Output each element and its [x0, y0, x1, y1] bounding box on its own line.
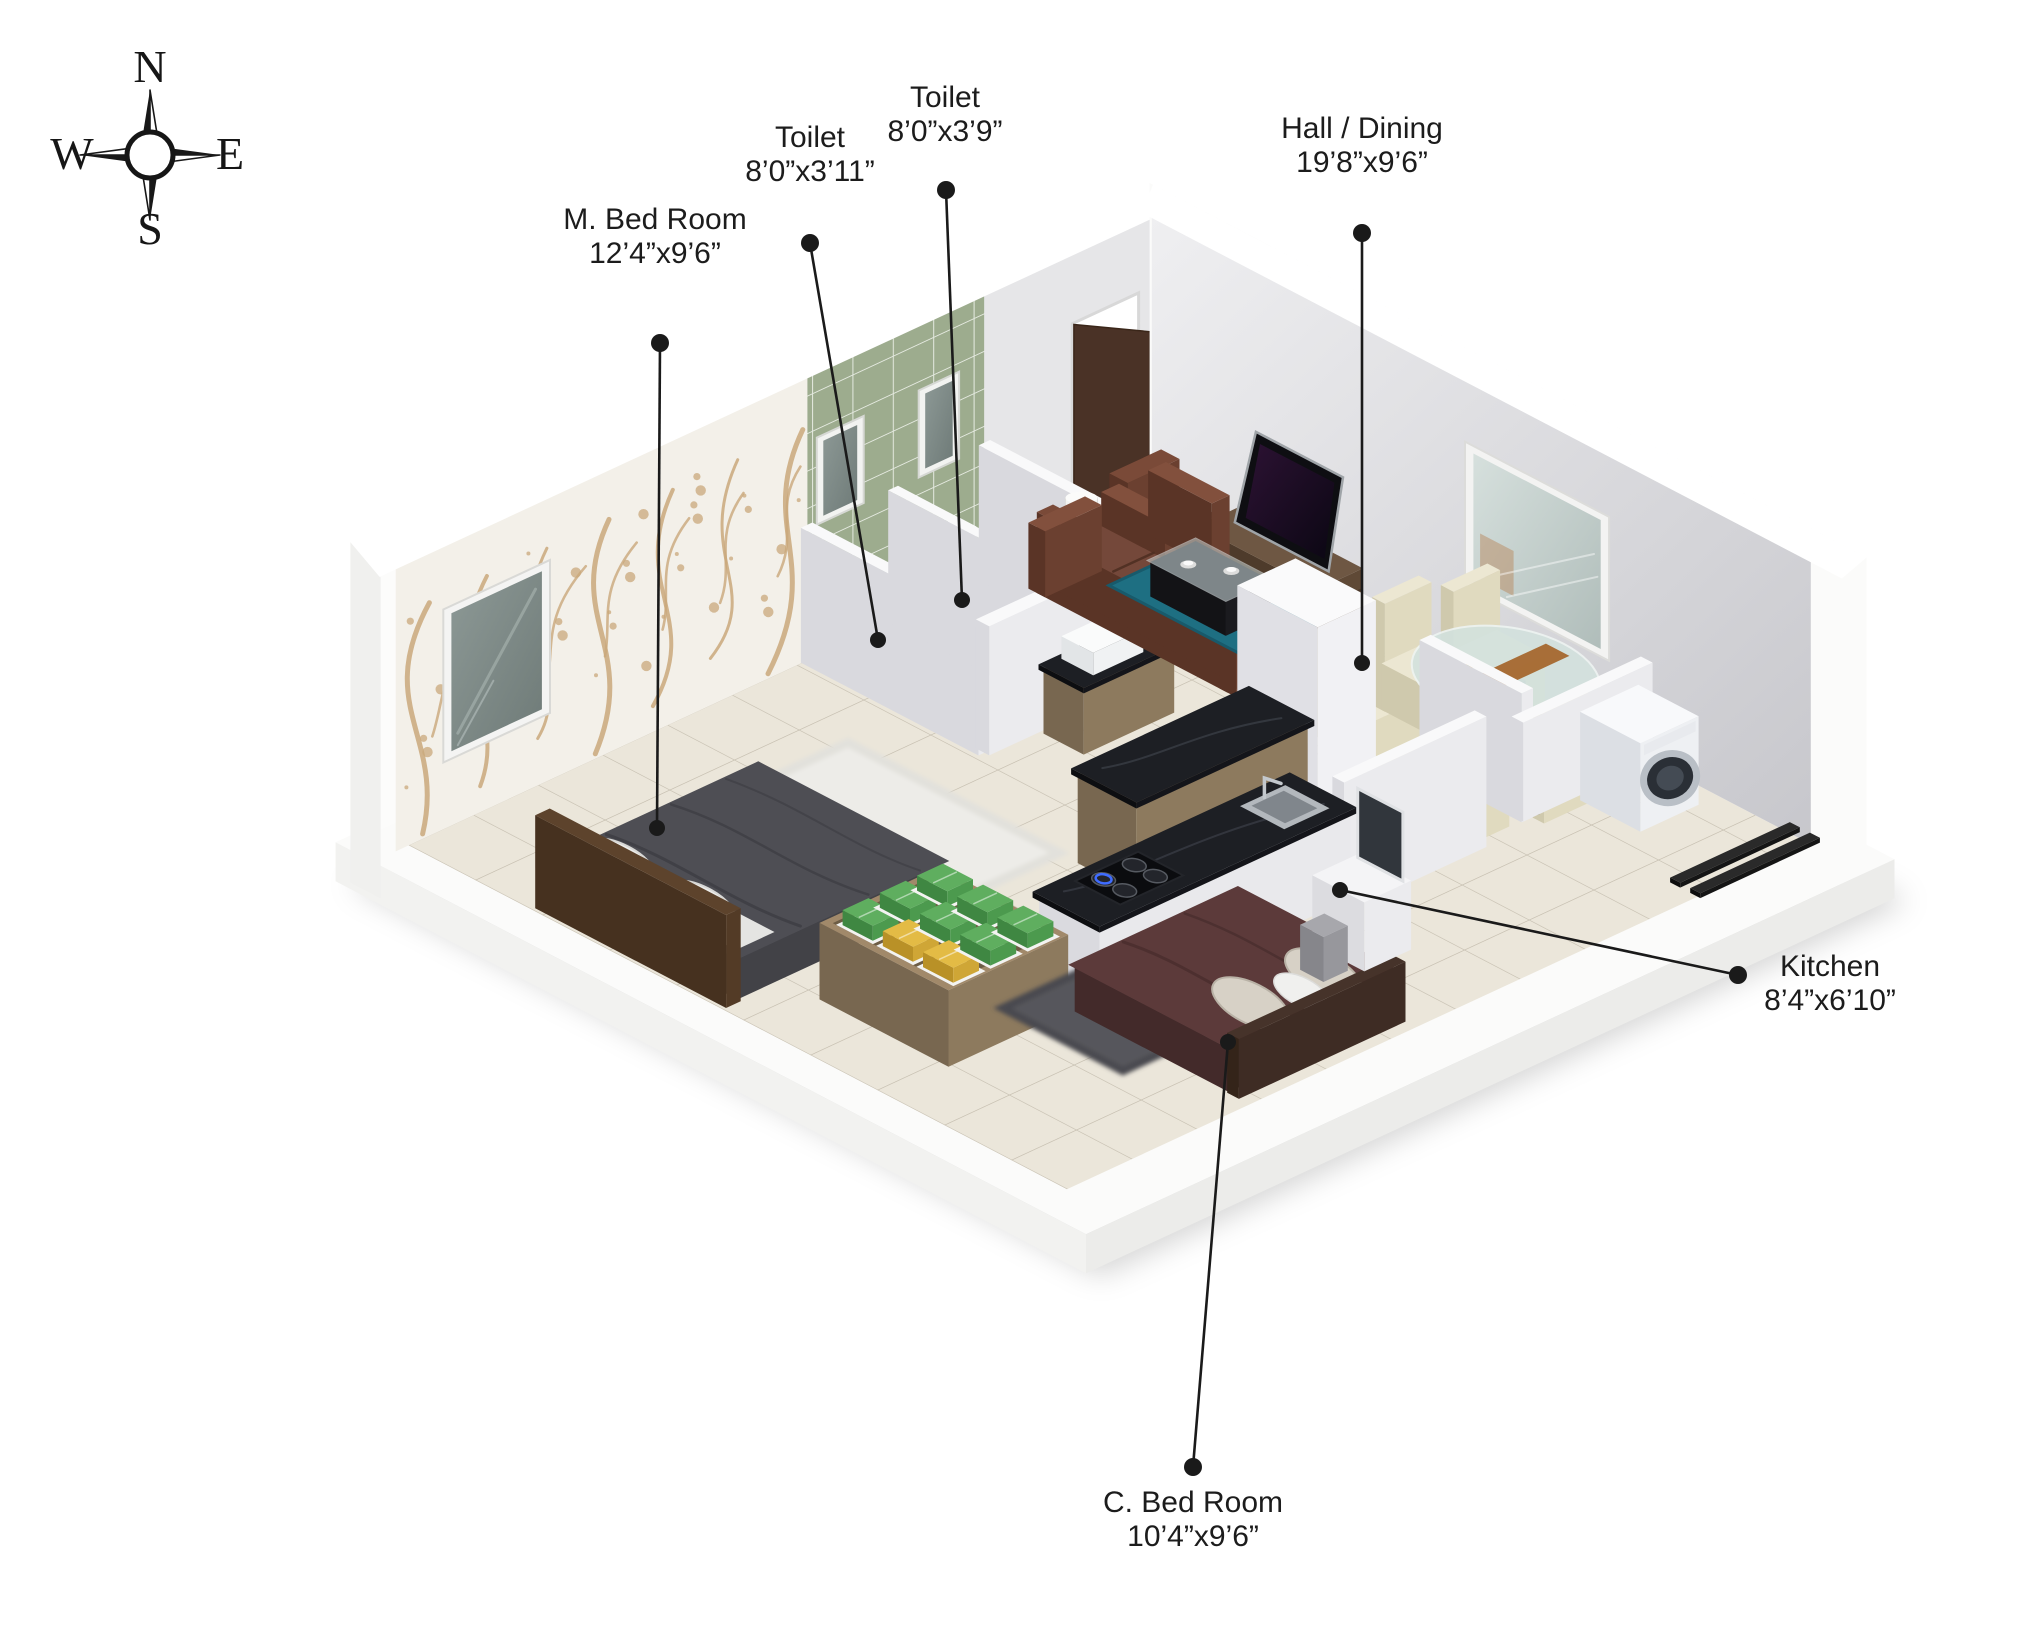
compass-rose: N S W E — [50, 40, 260, 255]
label-m-bedroom: M. Bed Room 12’4”x9’6” — [563, 203, 746, 271]
room-dims: 19’8”x9’6” — [1281, 146, 1443, 180]
room-dims: 8’0”x3’9” — [887, 115, 1002, 149]
compass-south-label: S — [137, 203, 163, 254]
label-kitchen: Kitchen 8’4”x6’10” — [1764, 950, 1896, 1018]
room-name: Toilet — [887, 81, 1002, 115]
room-name: Hall / Dining — [1281, 112, 1443, 146]
label-hall-dining: Hall / Dining 19’8”x9’6” — [1281, 112, 1443, 180]
room-dims: 10’4”x9’6” — [1103, 1520, 1283, 1554]
apartment-structure — [336, 178, 1909, 1277]
room-dims: 12’4”x9’6” — [563, 237, 746, 271]
room-name: Kitchen — [1764, 950, 1896, 984]
room-name: Toilet — [745, 121, 875, 155]
compass-north-label: N — [133, 41, 166, 92]
label-toilet-2: Toilet 8’0”x3’9” — [887, 81, 1002, 149]
apartment-3d-render — [0, 0, 2029, 1627]
compass-east-label: E — [216, 128, 244, 179]
compass-star — [80, 90, 220, 220]
floorplan-page: N S W E M. Bed Room 12’4”x9’6” Toilet 8’… — [0, 0, 2029, 1627]
label-toilet-1: Toilet 8’0”x3’11” — [745, 121, 875, 189]
label-c-bedroom: C. Bed Room 10’4”x9’6” — [1103, 1486, 1283, 1554]
room-dims: 8’0”x3’11” — [745, 155, 875, 189]
room-name: M. Bed Room — [563, 203, 746, 237]
compass-west-label: W — [50, 128, 94, 179]
room-dims: 8’4”x6’10” — [1764, 984, 1896, 1018]
room-name: C. Bed Room — [1103, 1486, 1283, 1520]
